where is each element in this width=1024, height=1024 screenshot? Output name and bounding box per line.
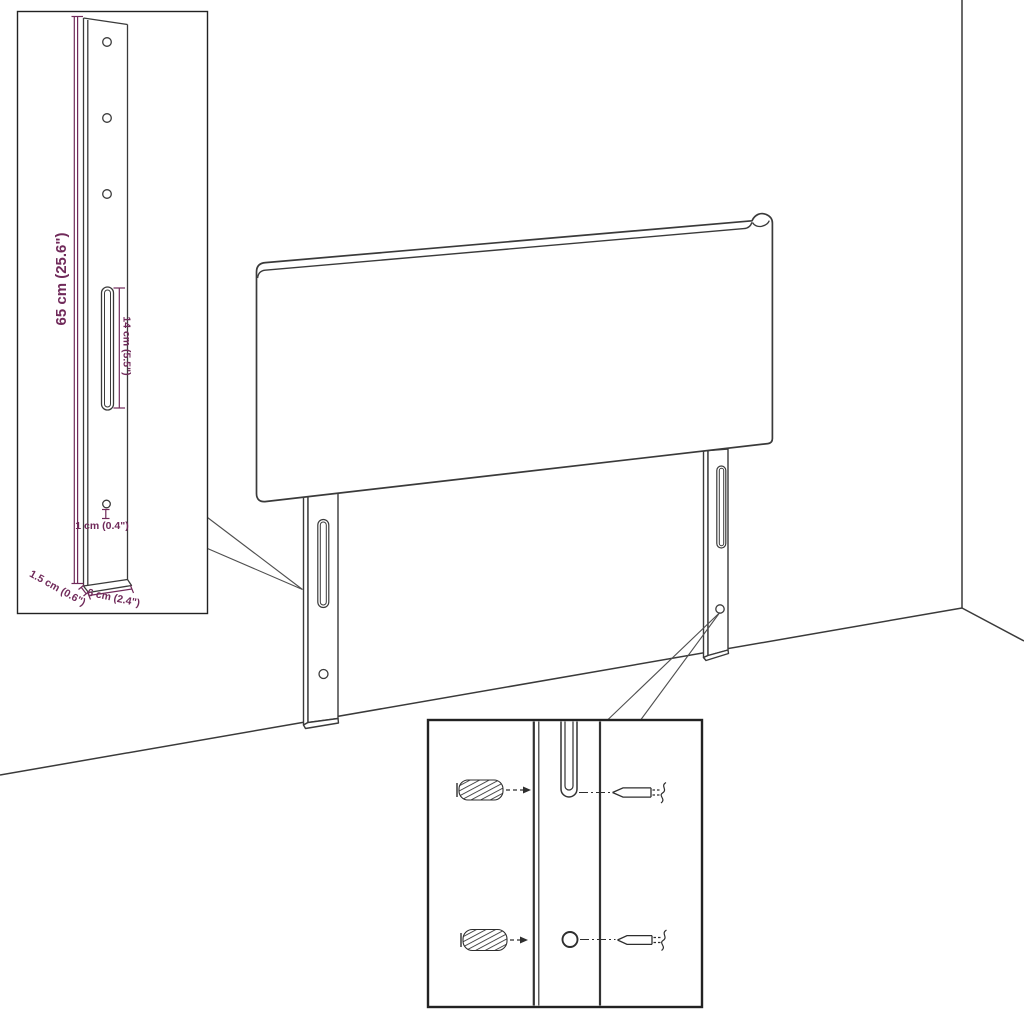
hole-dimension-label: 1 cm (0.4"): [75, 520, 128, 532]
bracket-inset: 65 cm (25.6") 14 cm (5.5") 1 cm (0.4") 1…: [18, 12, 208, 614]
height-dimension-label: 65 cm (25.6"): [53, 232, 70, 325]
bracket-callout-lines: [208, 518, 303, 590]
wall-plug-bottom-body: [463, 930, 507, 951]
floor-wall-edge-right: [962, 608, 1024, 641]
headboard-assembly-diagram: 65 cm (25.6") 14 cm (5.5") 1 cm (0.4") 1…: [0, 0, 1024, 1024]
bracket-callout-line-upper: [208, 518, 303, 590]
headboard-front-face: [257, 214, 773, 502]
wall-plug-top-body: [459, 780, 503, 800]
slot-dimension-label: 14 cm (5.5"): [121, 316, 133, 375]
headboard-panel: [257, 214, 773, 502]
hardware-inset: [428, 720, 702, 1007]
left-mounting-leg: [304, 487, 339, 729]
hardware-callout-line-right: [641, 613, 720, 720]
bracket-callout-line-lower: [208, 549, 303, 590]
